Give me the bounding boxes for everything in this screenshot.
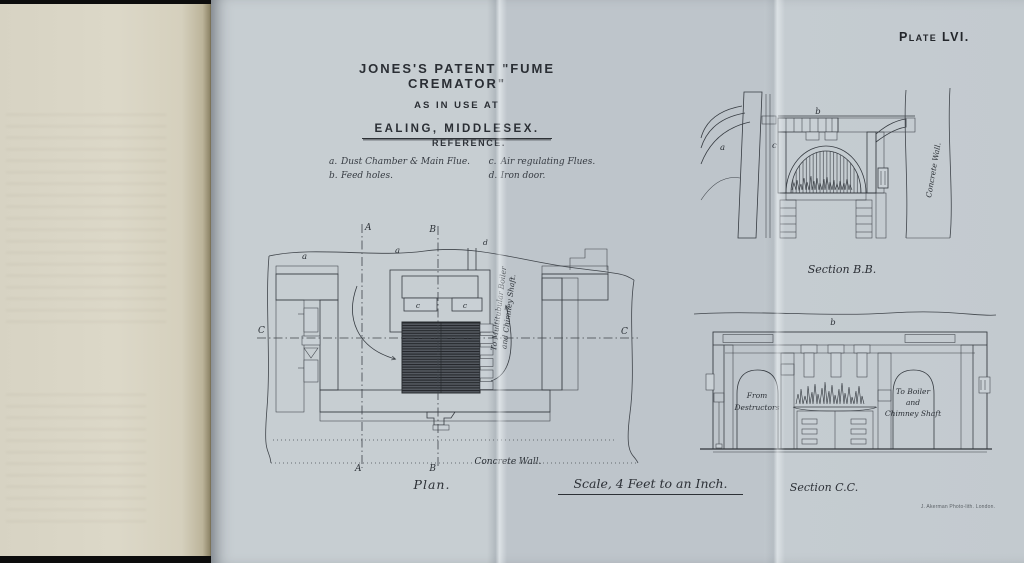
plan-section-letter-C: C xyxy=(258,326,265,336)
cc-to-label: To Boiler xyxy=(896,387,931,396)
reference-entry: c.Air regulating Flues. xyxy=(489,157,609,167)
title-block: JONES'S PATENT "FUME CREMATOR" AS IN USE… xyxy=(311,61,603,139)
reference-entry: b.Feed holes. xyxy=(329,171,489,181)
reference-block: REFERENCE. a.Dust Chamber & Main Flue. c… xyxy=(329,138,609,181)
plan-section-letter-B: B xyxy=(428,464,436,474)
plate-location: EALING, MIDDLESEX. xyxy=(362,123,551,139)
plate-number: Plate LVI. xyxy=(899,30,1019,44)
plate-page: Plate LVI. JONES'S PATENT "FUME CREMATOR… xyxy=(211,0,1024,563)
bleed-through-text xyxy=(6,394,146,524)
reference-entry: d.Iron door. xyxy=(489,171,609,181)
bb-label-b: b xyxy=(815,107,820,117)
plan-concrete-wall-label: Concrete Wall. xyxy=(474,457,541,467)
bb-label-a: a xyxy=(720,143,725,153)
cc-from-label: Destructors xyxy=(734,403,780,412)
bb-label-c: c xyxy=(772,141,777,151)
plan-label-a: a xyxy=(302,252,307,262)
scale-note: Scale, 4 Feet to an Inch. xyxy=(558,476,743,495)
plan-caption: Plan. xyxy=(401,477,463,492)
plate-subtitle: AS IN USE AT xyxy=(311,100,603,111)
plan-drawing: c c d xyxy=(255,218,640,476)
bleed-through-text xyxy=(6,114,166,324)
cc-to-label: Chimney Shaft xyxy=(885,409,942,418)
plan-label-d: d xyxy=(483,238,488,247)
svg-text:Concrete Wall.: Concrete Wall. xyxy=(924,142,943,199)
plan-section-letter-B: B xyxy=(428,225,436,235)
section-cc-caption: Section C.C. xyxy=(774,481,874,494)
fold-crease xyxy=(765,0,785,563)
cc-from-label: From xyxy=(746,391,767,400)
plate-title: JONES'S PATENT "FUME CREMATOR" xyxy=(311,61,603,91)
section-bb-drawing: a c b xyxy=(700,88,1000,240)
reference-entry: a.Dust Chamber & Main Flue. xyxy=(329,157,489,167)
reference-heading: REFERENCE. xyxy=(329,138,609,148)
printer-imprint: J. Akerman Photo-lith. London. xyxy=(918,504,998,510)
section-cc-drawing: b From Destruct xyxy=(690,308,1000,458)
plan-label-a: a xyxy=(395,246,400,256)
cc-to-label: and xyxy=(906,398,920,407)
bb-concrete-wall-label: Concrete Wall. xyxy=(924,142,943,199)
left-page xyxy=(0,4,211,556)
plan-flue-label: To Multitubular Boiler and Chimney Shaft… xyxy=(489,266,518,353)
plan-section-letter-C: C xyxy=(621,327,628,337)
book-photo: Plate LVI. JONES'S PATENT "FUME CREMATOR… xyxy=(0,0,1024,563)
cc-label-b: b xyxy=(830,318,835,328)
plan-section-letter-A: A xyxy=(364,223,372,233)
plan-section-letter-A: A xyxy=(354,464,362,474)
section-bb-caption: Section B.B. xyxy=(792,263,892,276)
